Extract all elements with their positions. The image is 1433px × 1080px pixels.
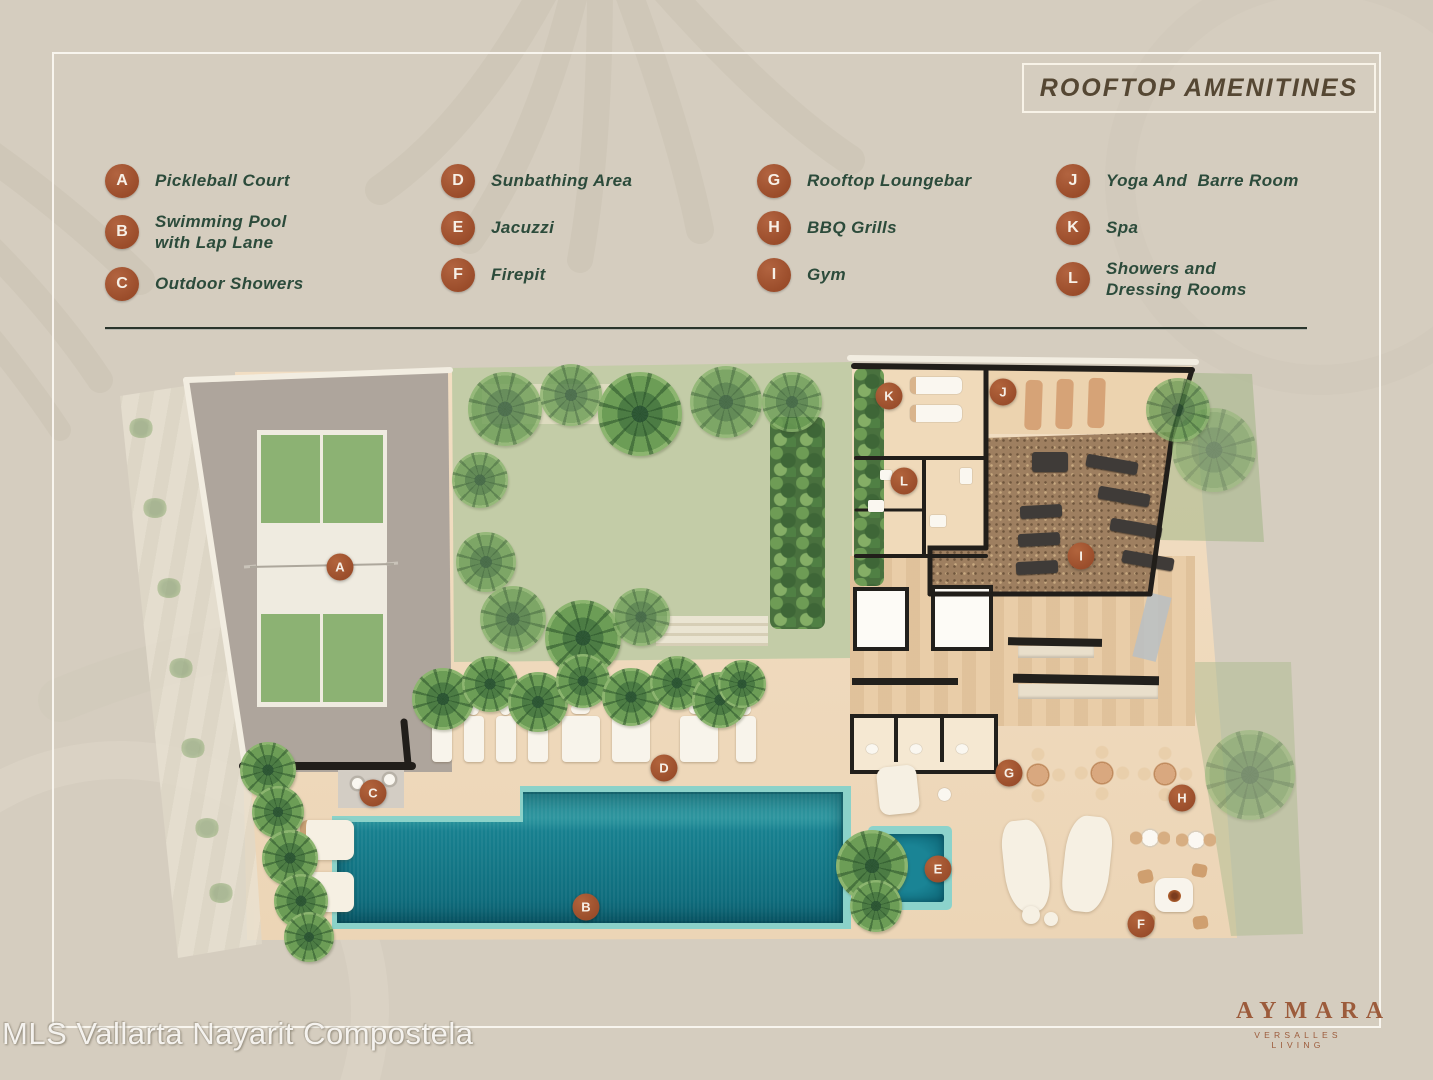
legend-item-G: GRooftop Loungebar — [757, 164, 972, 198]
legend-label: Jacuzzi — [491, 217, 554, 238]
legend-marker-badge: E — [441, 211, 475, 245]
legend-item-J: JYoga And Barre Room — [1056, 164, 1299, 198]
legend-label: Yoga And Barre Room — [1106, 170, 1299, 191]
legend-marker-badge: G — [757, 164, 791, 198]
legend-marker-badge: A — [105, 164, 139, 198]
legend-label: Gym — [807, 264, 846, 285]
legend-item-F: FFirepit — [441, 258, 632, 292]
amenities-legend: APickleball CourtBSwimming Pool with Lap… — [0, 0, 1433, 1080]
legend-label: Spa — [1106, 217, 1138, 238]
legend-item-C: COutdoor Showers — [105, 267, 304, 301]
logo-brand-name: AYMARA — [1236, 998, 1368, 1025]
legend-marker-badge: B — [105, 215, 139, 249]
legend-item-H: HBBQ Grills — [757, 211, 972, 245]
legend-marker-badge: F — [441, 258, 475, 292]
legend-marker-badge: H — [757, 211, 791, 245]
legend-label: Showers and Dressing Rooms — [1106, 258, 1247, 301]
legend-item-K: KSpa — [1056, 211, 1299, 245]
legend-marker-badge: C — [105, 267, 139, 301]
legend-column-4: JYoga And Barre RoomKSpaLShowers and Dre… — [1056, 164, 1299, 301]
legend-divider-line — [105, 327, 1307, 330]
legend-label: Swimming Pool with Lap Lane — [155, 211, 287, 254]
aymara-logo: AYMARA VERSALLES LIVING — [1228, 998, 1368, 1050]
logo-tagline: VERSALLES LIVING — [1228, 1030, 1368, 1050]
legend-item-D: DSunbathing Area — [441, 164, 632, 198]
legend-item-L: LShowers and Dressing Rooms — [1056, 258, 1299, 301]
legend-marker-badge: J — [1056, 164, 1090, 198]
legend-label: Firepit — [491, 264, 546, 285]
legend-column-1: APickleball CourtBSwimming Pool with Lap… — [105, 164, 304, 301]
legend-item-E: EJacuzzi — [441, 211, 632, 245]
legend-column-3: GRooftop LoungebarHBBQ GrillsIGym — [757, 164, 972, 292]
legend-label: BBQ Grills — [807, 217, 897, 238]
legend-marker-badge: L — [1056, 262, 1090, 296]
legend-label: Sunbathing Area — [491, 170, 632, 191]
legend-label: Rooftop Loungebar — [807, 170, 972, 191]
legend-marker-badge: K — [1056, 211, 1090, 245]
mls-watermark-text: MLS Vallarta Nayarit Compostela — [2, 1016, 474, 1052]
legend-item-I: IGym — [757, 258, 972, 292]
legend-item-B: BSwimming Pool with Lap Lane — [105, 211, 304, 254]
legend-marker-badge: D — [441, 164, 475, 198]
page-canvas: ABCDEFGHIJKL ROOFTOP AMENITINES APickleb… — [0, 0, 1433, 1080]
legend-item-A: APickleball Court — [105, 164, 304, 198]
legend-marker-badge: I — [757, 258, 791, 292]
legend-column-2: DSunbathing AreaEJacuzziFFirepit — [441, 164, 632, 292]
legend-label: Pickleball Court — [155, 170, 290, 191]
legend-label: Outdoor Showers — [155, 273, 304, 294]
